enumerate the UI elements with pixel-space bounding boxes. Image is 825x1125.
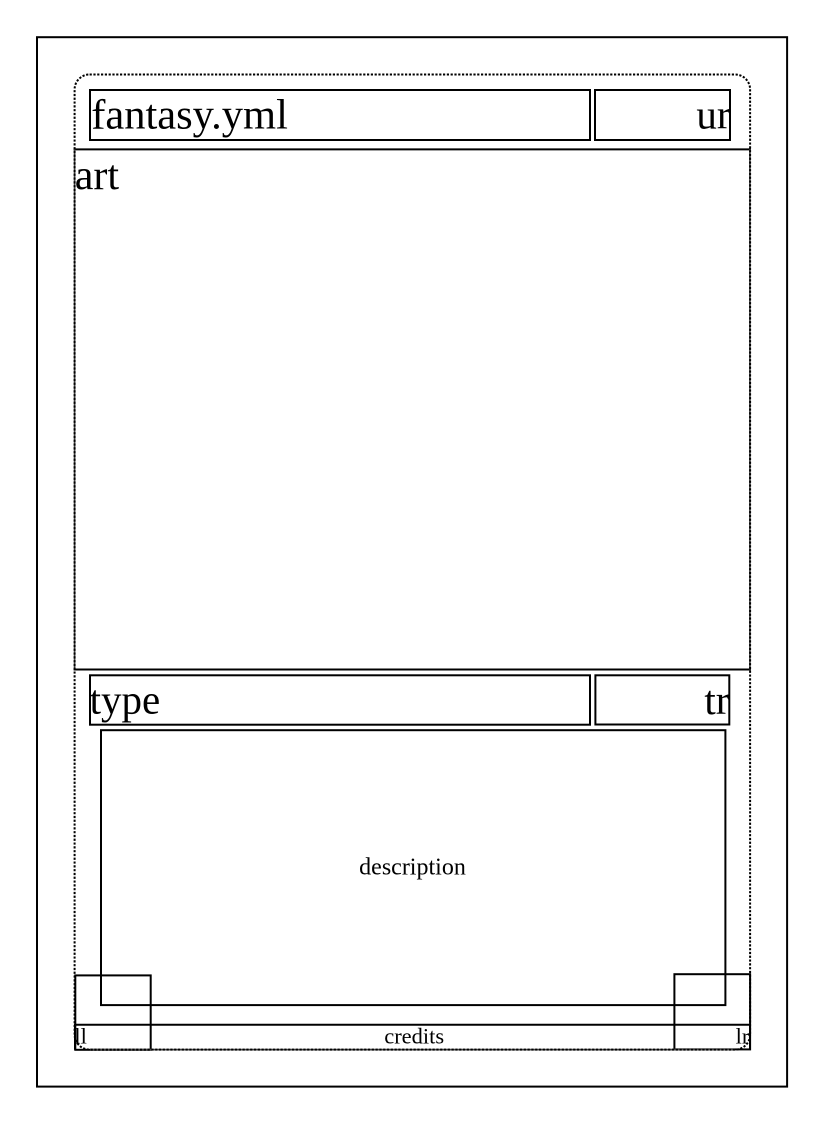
svg-text:ur: ur bbox=[696, 91, 731, 137]
svg-text:ll: ll bbox=[74, 1024, 87, 1049]
svg-text:lr: lr bbox=[736, 1024, 750, 1049]
svg-text:type: type bbox=[90, 677, 161, 723]
svg-text:credits: credits bbox=[384, 1024, 444, 1049]
svg-text:description: description bbox=[359, 855, 466, 881]
svg-text:tr: tr bbox=[704, 677, 729, 723]
svg-text:art: art bbox=[75, 153, 120, 199]
svg-text:fantasy.yml: fantasy.yml bbox=[91, 92, 288, 139]
